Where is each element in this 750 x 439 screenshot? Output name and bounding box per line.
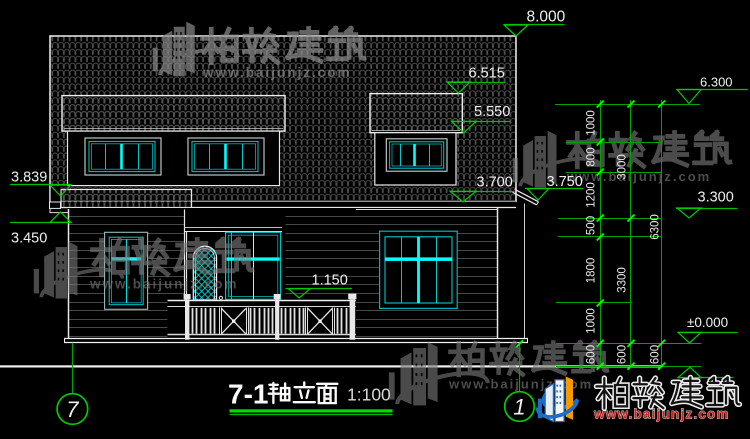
svg-text:600: 600 [617, 345, 629, 364]
svg-text:3300: 3300 [617, 267, 629, 293]
svg-text:6.515: 6.515 [469, 66, 505, 82]
svg-text:www.baijunjz.com: www.baijunjz.com [566, 169, 711, 184]
svg-text:3.750: 3.750 [547, 174, 583, 190]
svg-text:7-1: 7-1 [228, 379, 268, 410]
svg-text:5.550: 5.550 [474, 104, 510, 120]
svg-text:7: 7 [66, 397, 79, 422]
svg-text:6300: 6300 [650, 214, 662, 240]
svg-text:800: 800 [586, 147, 598, 166]
svg-text:1.150: 1.150 [312, 273, 348, 289]
svg-text:1: 1 [513, 395, 525, 420]
svg-text:www.baijunjz.com: www.baijunjz.com [202, 65, 352, 80]
svg-text:1000: 1000 [586, 308, 598, 334]
svg-text:1800: 1800 [586, 258, 598, 284]
svg-text:1:100: 1:100 [347, 385, 391, 405]
svg-text:6.300: 6.300 [700, 75, 733, 90]
svg-text:www.baijunjz.com: www.baijunjz.com [593, 407, 730, 422]
svg-text:3000: 3000 [617, 154, 629, 180]
svg-text:±0.000: ±0.000 [687, 315, 728, 330]
svg-text:1200: 1200 [586, 182, 598, 208]
svg-text:3.839: 3.839 [11, 170, 47, 186]
svg-text:500: 500 [586, 216, 598, 235]
svg-text:3.700: 3.700 [477, 175, 513, 191]
svg-text:600: 600 [586, 345, 598, 364]
svg-text:3.300: 3.300 [698, 190, 734, 206]
svg-text:8.000: 8.000 [527, 9, 566, 26]
svg-text:600: 600 [650, 345, 662, 364]
svg-text:www.baijunjz.com: www.baijunjz.com [89, 277, 239, 292]
svg-text:1000: 1000 [586, 110, 598, 136]
svg-text:3.450: 3.450 [11, 231, 47, 247]
